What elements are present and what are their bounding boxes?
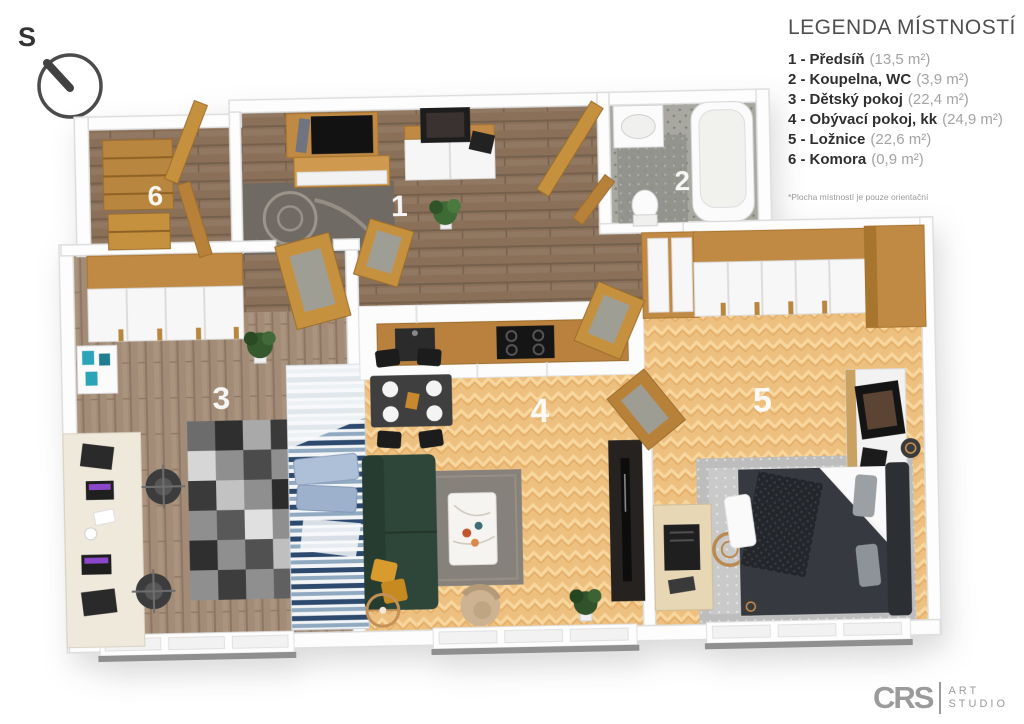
logo-word-art: ART bbox=[948, 685, 1008, 698]
kids-bed bbox=[286, 364, 369, 630]
hall-mirror-wardrobe bbox=[286, 112, 378, 158]
studio-logo: CRS ART STUDIO bbox=[873, 680, 1008, 716]
bed bbox=[723, 462, 912, 619]
pillow bbox=[296, 485, 357, 513]
computer bbox=[664, 524, 701, 570]
kids-wardrobe bbox=[87, 253, 244, 342]
pillow bbox=[852, 474, 877, 517]
kids-desks bbox=[63, 432, 145, 647]
headboard bbox=[885, 462, 912, 616]
dining-chair bbox=[377, 430, 402, 448]
pillow bbox=[855, 543, 881, 587]
wall bbox=[74, 117, 91, 256]
laptop bbox=[86, 481, 114, 500]
window bbox=[704, 618, 912, 649]
room-label-living-room: 4 bbox=[530, 392, 550, 430]
room-label-hall: 1 bbox=[391, 190, 408, 223]
kids-room-rug bbox=[187, 419, 302, 600]
cooktop bbox=[496, 325, 554, 359]
room-label-storage: 6 bbox=[147, 180, 163, 211]
wall bbox=[74, 114, 241, 130]
dining-chair bbox=[417, 348, 442, 366]
legend-item: 1 -Předsíň(13,5 m²) bbox=[788, 51, 1018, 68]
monitor bbox=[80, 443, 114, 469]
floor-plan: 1 2 3 4 5 6 bbox=[44, 76, 961, 695]
legend-title: LEGENDA MÍSTNOSTÍ bbox=[788, 16, 1018, 40]
wall bbox=[229, 112, 243, 253]
room-label-bedroom: 5 bbox=[753, 381, 773, 419]
room-label-kids-room: 3 bbox=[212, 380, 230, 416]
room-area: (24,9 m²) bbox=[942, 111, 1003, 128]
wall bbox=[756, 89, 772, 231]
room-area: (13,5 m²) bbox=[870, 51, 931, 68]
bedroom-desk bbox=[653, 504, 713, 611]
coffee-table bbox=[448, 493, 497, 566]
logo-initials: CRS bbox=[873, 680, 932, 716]
room-number: 1 - bbox=[788, 51, 806, 68]
storage-shelves bbox=[102, 139, 174, 250]
dining-chair bbox=[418, 429, 444, 449]
room-label-bathroom: 2 bbox=[674, 165, 690, 196]
sink-vanity bbox=[613, 105, 664, 148]
kitchen-tall-cabinet bbox=[642, 232, 699, 319]
kids-shelf bbox=[77, 345, 118, 394]
hall-bench bbox=[294, 156, 390, 188]
logo-divider bbox=[939, 682, 941, 714]
logo-word-studio: STUDIO bbox=[948, 698, 1008, 711]
bathtub bbox=[691, 101, 755, 222]
room-name: Předsíň bbox=[810, 51, 865, 68]
toilet bbox=[632, 190, 659, 226]
monitor bbox=[81, 588, 118, 616]
poster: S LEGENDA MÍSTNOSTÍ 1 -Předsíň(13,5 m²) … bbox=[0, 0, 1024, 724]
window bbox=[431, 624, 639, 655]
dining-chair bbox=[375, 348, 401, 368]
sofa bbox=[362, 454, 439, 611]
wall bbox=[333, 239, 359, 250]
tv-cabinet bbox=[608, 440, 645, 602]
